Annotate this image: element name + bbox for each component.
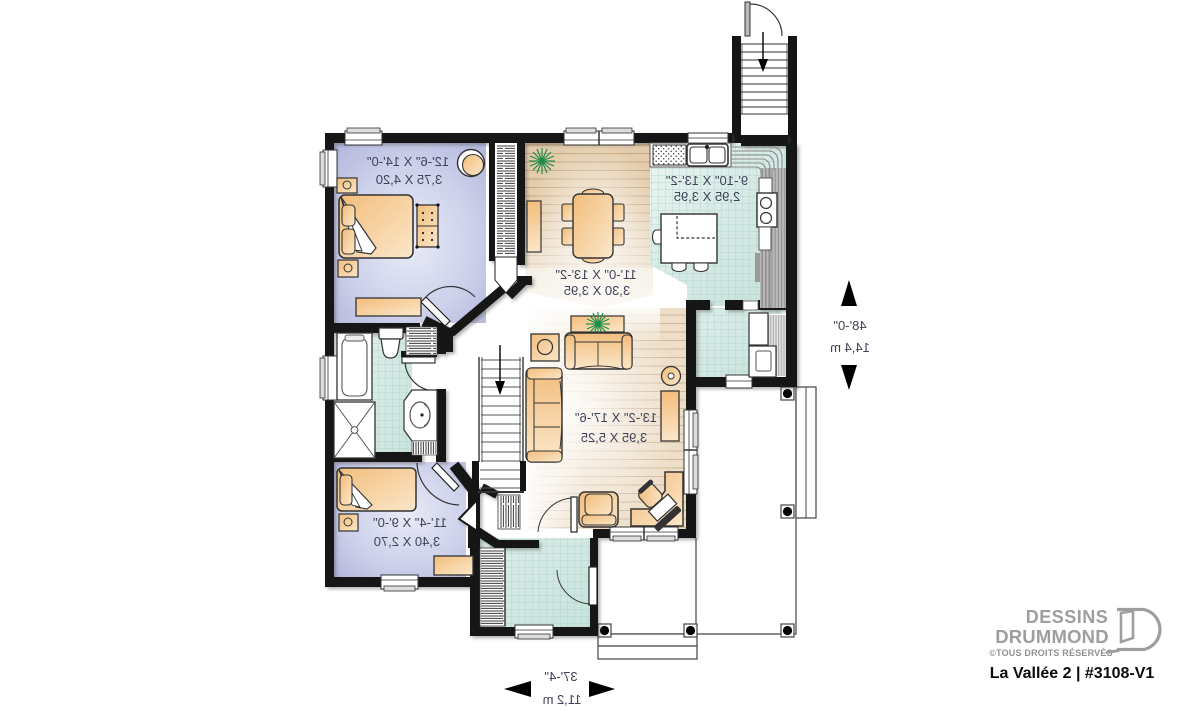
svg-text:12'-6" X 14'-0": 12'-6" X 14'-0": [367, 154, 450, 169]
svg-text:11'-0" X 13'-2": 11'-0" X 13'-2": [555, 267, 637, 282]
svg-text:11'-4" X 9'-0": 11'-4" X 9'-0": [373, 515, 447, 530]
svg-text:48'-0": 48'-0": [833, 318, 867, 333]
svg-text:3,95 X 5,25: 3,95 X 5,25: [581, 430, 648, 445]
svg-text:11,2 m: 11,2 m: [543, 692, 582, 707]
svg-text:DESSINS: DESSINS: [1026, 607, 1109, 627]
svg-text:3,75 X 4,20: 3,75 X 4,20: [376, 172, 443, 187]
svg-text:©TOUS DROITS RÉSERVÉS: ©TOUS DROITS RÉSERVÉS: [989, 648, 1113, 658]
svg-text:3,40 X 2,70: 3,40 X 2,70: [374, 534, 441, 549]
svg-text:La Vallée 2 | #3108-V1: La Vallée 2 | #3108-V1: [990, 665, 1155, 682]
svg-text:37'-4": 37'-4": [544, 669, 578, 684]
svg-text:2,95 X 3,95: 2,95 X 3,95: [674, 189, 741, 204]
svg-text:9'-10" X 13'-2": 9'-10" X 13'-2": [666, 173, 749, 188]
svg-text:14,4 m: 14,4 m: [830, 340, 870, 355]
svg-text:3,30 X 3,95: 3,30 X 3,95: [564, 283, 631, 298]
svg-text:DRUMMOND: DRUMMOND: [995, 626, 1109, 647]
svg-text:13'-2" X 17'-6": 13'-2" X 17'-6": [575, 410, 658, 425]
